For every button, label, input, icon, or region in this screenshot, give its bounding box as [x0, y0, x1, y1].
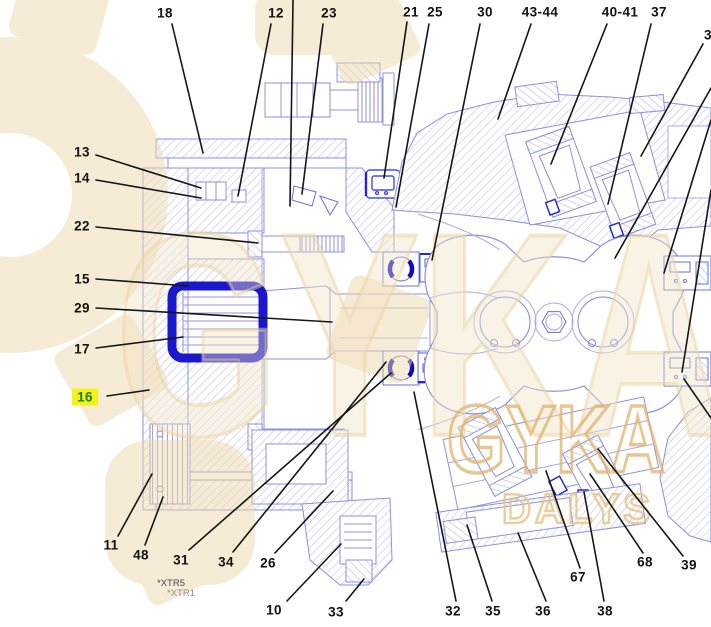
- callout-48[interactable]: 48: [133, 548, 149, 563]
- callout-43-44[interactable]: 43-44: [522, 5, 559, 20]
- callout-67[interactable]: 67: [570, 570, 586, 585]
- callout-17[interactable]: 17: [74, 342, 90, 357]
- callout-26[interactable]: 26: [260, 556, 276, 571]
- cross-section-drawing: GYKA GYKA DALYS: [0, 0, 711, 627]
- callout-33[interactable]: 33: [328, 605, 344, 620]
- callout-31[interactable]: 31: [173, 553, 189, 568]
- callout-23[interactable]: 23: [321, 6, 337, 21]
- footnote-xtr1: *XTR1: [167, 588, 195, 599]
- callout-37[interactable]: 37: [651, 5, 667, 20]
- parts-diagram-page: GYKA GYKA DALYS *XTR5 *XTR1 181223212530…: [0, 0, 711, 627]
- watermark-text-logo: GYKA: [447, 386, 665, 493]
- callout-38[interactable]: 38: [597, 604, 613, 619]
- callout-35[interactable]: 35: [485, 604, 501, 619]
- top-cover-plate: [156, 139, 346, 158]
- leader-line-18: [172, 24, 203, 153]
- callout-29[interactable]: 29: [74, 301, 90, 316]
- callout-21[interactable]: 21: [403, 5, 419, 20]
- housing-bolt-head-2: [629, 95, 664, 114]
- callout-11[interactable]: 11: [103, 538, 118, 553]
- bolt-threads: [358, 78, 382, 122]
- flange-bolt-head: [346, 560, 372, 582]
- callout-39[interactable]: 39: [681, 558, 697, 573]
- leader-line-36: [518, 533, 546, 601]
- callout-15[interactable]: 15: [74, 272, 90, 287]
- callout-14[interactable]: 14: [74, 171, 90, 186]
- callout-10[interactable]: 10: [266, 603, 282, 618]
- callout-22[interactable]: 22: [74, 219, 90, 234]
- callout-25[interactable]: 25: [427, 5, 443, 20]
- callout-68[interactable]: 68: [637, 555, 653, 570]
- callout-16-selected[interactable]: 16: [72, 389, 98, 406]
- cover-bolt-35: [443, 517, 478, 543]
- callout-12[interactable]: 12: [268, 6, 284, 21]
- callout-36[interactable]: 36: [535, 604, 551, 619]
- callout-13[interactable]: 13: [74, 145, 90, 160]
- callout-30[interactable]: 30: [477, 5, 493, 20]
- callout-32[interactable]: 32: [445, 604, 461, 619]
- callout-18[interactable]: 18: [157, 6, 173, 21]
- callout-40-41[interactable]: 40-41: [602, 5, 639, 20]
- callout-3[interactable]: 3: [704, 28, 711, 43]
- callout-34[interactable]: 34: [218, 555, 234, 570]
